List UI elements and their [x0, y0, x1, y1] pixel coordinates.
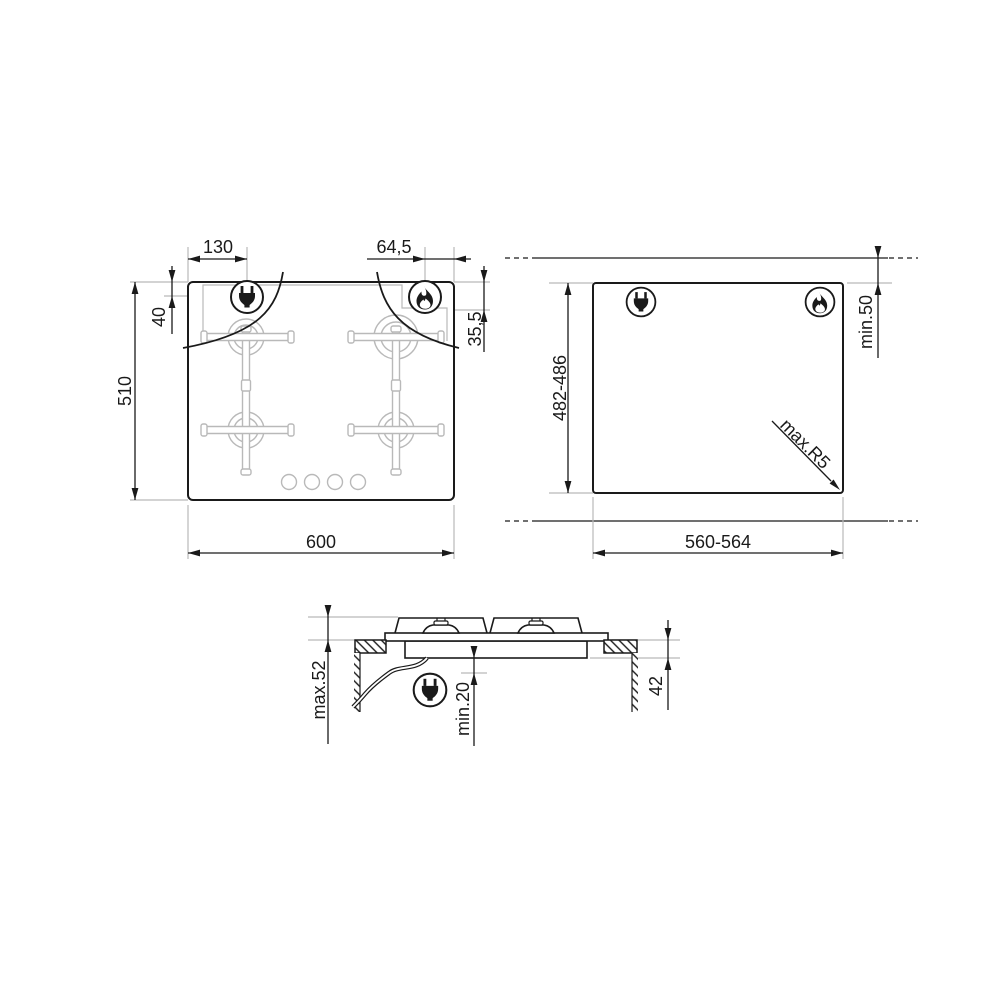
dim-flame-offset-y: 35,5 — [465, 266, 487, 352]
side-view: max.52 min.20 42 — [308, 605, 680, 746]
dim-clearance-below: min.20 — [453, 646, 477, 746]
hob-installation-diagram: 130 64,5 40 35,5 510 — [0, 0, 1000, 1000]
hob-top-plate — [385, 633, 608, 641]
cabinet-walls — [354, 653, 638, 712]
dim-height-above-label: max.52 — [309, 660, 329, 719]
worktop-section-left — [355, 640, 386, 653]
worktop-section-right — [604, 640, 637, 653]
pan-supports-section — [395, 618, 582, 633]
dim-flame-offset-x-label: 64,5 — [376, 237, 411, 257]
gas-flame-icon — [409, 281, 441, 313]
dim-build-in-depth: 42 — [646, 620, 671, 710]
power-plug-icon — [231, 281, 263, 313]
dim-cutout-depth: 482-486 — [550, 283, 571, 493]
hob-body-section — [405, 641, 587, 658]
dim-plug-offset-y: 40 — [149, 266, 175, 334]
dim-cutout-depth-label: 482-486 — [550, 355, 570, 421]
cutout-outline — [593, 283, 843, 493]
power-plug-icon — [627, 288, 656, 317]
dim-build-in-depth-label: 42 — [646, 676, 666, 696]
dim-clearance-below-label: min.20 — [453, 682, 473, 736]
dim-plug-offset-x: 130 — [188, 237, 247, 262]
dim-height-above: max.52 — [309, 605, 331, 744]
gas-flame-icon — [806, 288, 835, 317]
dim-rear-clearance-label: min.50 — [856, 295, 876, 349]
dim-cutout-width-label: 560-564 — [685, 532, 751, 552]
dim-plug-offset-x-label: 130 — [203, 237, 233, 257]
dim-rear-clearance: min.50 — [856, 246, 881, 358]
hob-outline — [188, 282, 454, 500]
dim-cutout-width: 560-564 — [593, 532, 843, 556]
dim-hob-width: 600 — [188, 532, 454, 556]
technical-drawing: 130 64,5 40 35,5 510 — [0, 0, 1000, 1000]
cutout-view: 482-486 560-564 min.50 max.R5 — [505, 246, 918, 559]
dim-hob-depth-label: 510 — [115, 376, 135, 406]
dim-hob-depth: 510 — [115, 282, 138, 500]
dim-plug-offset-y-label: 40 — [149, 307, 169, 327]
dim-flame-offset-x: 64,5 — [367, 237, 471, 262]
dim-hob-width-label: 600 — [306, 532, 336, 552]
power-plug-icon — [414, 674, 447, 707]
dim-flame-offset-y-label: 35,5 — [465, 311, 485, 346]
plan-view: 130 64,5 40 35,5 510 — [115, 237, 490, 559]
